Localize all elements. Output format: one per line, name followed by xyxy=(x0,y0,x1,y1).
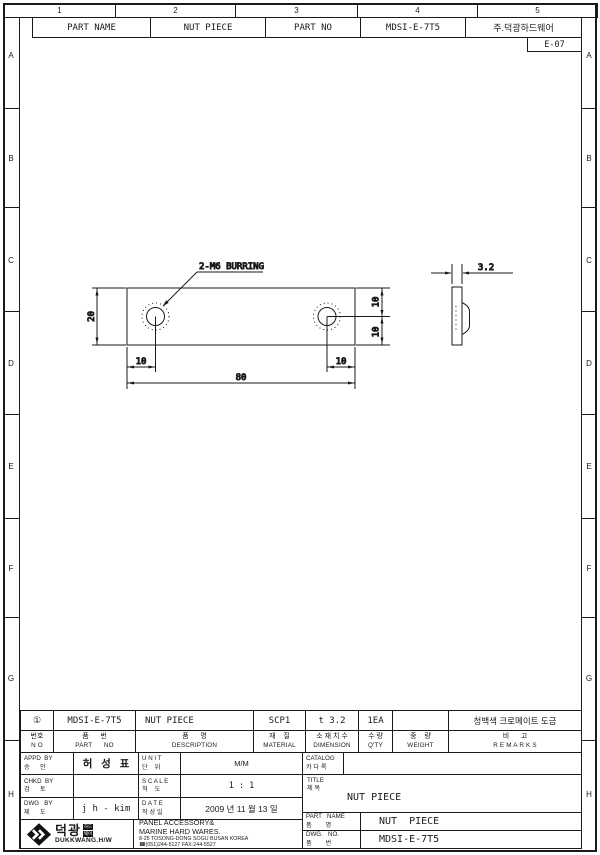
tb-header-ko: 품 번 xyxy=(82,733,107,742)
tb-header-weight: 중 량WEIGHT xyxy=(392,730,449,753)
tb-catalog-ko: 카 다 록 xyxy=(306,764,340,772)
dim-arrow xyxy=(348,382,355,385)
tb-company-cell: PANEL ACCESSORY& MARINE HARD WARES. 8-25… xyxy=(133,819,303,849)
logo-text-block: 덕광 하드 웨어 DUKKWANG.H/W xyxy=(55,824,112,845)
dim-arrow xyxy=(463,272,470,275)
tb-date-value-text: 2009 년 11 월 13 일 xyxy=(205,803,277,815)
tb-partname-ko: 품 명 xyxy=(306,822,357,830)
tb-header-no: 번호N O xyxy=(20,730,54,753)
tb-dwgno-ko: 품 번 xyxy=(306,840,357,848)
tb-qty-text: 1EA xyxy=(367,716,383,726)
tb-appd-value-text: 허 성 표 xyxy=(83,756,129,771)
tb-date-label: D A T E작 성 일 xyxy=(138,797,181,820)
tb-appd-ko: 승 인 xyxy=(24,764,70,772)
dim-arrow xyxy=(149,366,156,369)
tb-remarks: 청백색 크로메이트 도금 xyxy=(448,710,582,731)
dim-arrow xyxy=(96,338,99,345)
tb-header-en: R E M A R K S xyxy=(493,742,537,750)
tb-weight xyxy=(392,710,449,731)
tb-description: NUT PIECE xyxy=(135,710,254,731)
logo-english-name: DUKKWANG.H/W xyxy=(55,838,112,845)
tb-unit-label: U N I T단 위 xyxy=(138,752,181,775)
tb-logo-cell: 덕광 하드 웨어 DUKKWANG.H/W xyxy=(20,819,134,849)
dim-arrow xyxy=(348,366,355,369)
tb-part-no-text: MDSI-E-7T5 xyxy=(67,716,121,726)
dukkwang-logo-icon xyxy=(26,822,52,847)
tb-dimension: t 3.2 xyxy=(305,710,359,731)
tb-header-en: N O xyxy=(31,742,43,750)
logo-badge-bottom: 웨어 xyxy=(83,831,93,837)
tb-header-ko: 품 명 xyxy=(182,733,207,742)
dim-text-length: 80 xyxy=(236,373,247,383)
tb-catalog-label: CATALOG카 다 록 xyxy=(302,752,344,775)
tb-description-text: NUT PIECE xyxy=(145,716,194,726)
tb-date-en: D A T E xyxy=(142,800,177,808)
tb-scale-value-text: 1 : 1 xyxy=(229,781,255,791)
tb-no: ① xyxy=(20,710,54,731)
logo-korean-name: 덕광 xyxy=(55,824,81,837)
tb-part-no: MDSI-E-7T5 xyxy=(53,710,136,731)
tb-partname-value-text: NUT PIECE xyxy=(379,816,439,827)
tb-dwgby-value: j h - kim xyxy=(73,797,139,820)
dim-arrow xyxy=(445,272,452,275)
tb-header-material: 재 질MATERIAL xyxy=(253,730,306,753)
tb-appd-label: APPD BY승 인 xyxy=(20,752,74,775)
tb-header-en: DIMENSION xyxy=(313,742,350,750)
dim-arrow xyxy=(381,289,384,296)
tb-appd-value: 허 성 표 xyxy=(73,752,139,775)
company-line2: MARINE HARD WARES. xyxy=(139,828,302,836)
tb-material: SCP1 xyxy=(253,710,306,731)
tb-unit-value-text: M/M xyxy=(234,759,249,768)
tb-header-description: 품 명DESCRIPTION xyxy=(135,730,254,753)
tb-dwgno-value: MDSI-E-7T5 xyxy=(360,830,582,849)
tb-date-ko: 작 성 일 xyxy=(142,809,177,817)
tb-dwgby-ko: 제 도 xyxy=(24,809,70,817)
tb-header-part-no: 품 번PART NO xyxy=(53,730,136,753)
tb-header-ko: 소 재 치 수 xyxy=(316,733,348,742)
tb-header-ko: 비 고 xyxy=(503,733,528,742)
tb-dwgno-label: DWG. NO.품 번 xyxy=(302,830,361,849)
tb-unit-value: M/M xyxy=(180,752,303,775)
tb-header-ko: 중 량 xyxy=(410,733,431,742)
dim-arrow xyxy=(381,317,384,324)
dim-text-height: 20 xyxy=(87,311,97,322)
tb-partname-en: PART NAME xyxy=(306,813,357,821)
dim-text-thickness: 3.2 xyxy=(478,263,494,273)
tb-dimension-text: t 3.2 xyxy=(318,716,345,726)
tb-header-en: WEIGHT xyxy=(407,742,433,750)
side-view-outline xyxy=(452,287,462,345)
logo-badge-top: 하드 xyxy=(83,824,93,830)
tb-scale-label: S C A L E척 도 xyxy=(138,774,181,798)
tb-dwgby-label: DWG BY제 도 xyxy=(20,797,74,820)
tb-material-text: SCP1 xyxy=(269,716,291,726)
tb-partname-value: NUT PIECE xyxy=(360,812,582,831)
tb-header-remarks: 비 고R E M A R K S xyxy=(448,730,582,753)
company-line4: ☎(051)244-5127 FAX:244-5527 xyxy=(139,842,302,848)
burring-label: 2-M6 BURRING xyxy=(199,262,264,272)
tb-unit-en: U N I T xyxy=(142,755,177,763)
tb-remarks-text: 청백색 크로메이트 도금 xyxy=(474,715,557,727)
dim-arrow xyxy=(128,366,135,369)
dim-arrow xyxy=(381,338,384,345)
tb-scale-value: 1 : 1 xyxy=(180,774,303,798)
tb-no-text: ① xyxy=(33,715,41,726)
tb-chkd-value xyxy=(73,774,139,798)
side-view-burring-bump xyxy=(462,303,470,335)
tb-partname-label: PART NAME품 명 xyxy=(302,812,361,831)
logo-badges: 하드 웨어 xyxy=(83,824,93,837)
dim-arrow xyxy=(128,382,135,385)
tb-chkd-en: CHKD BY xyxy=(24,778,70,786)
drawing-sheet: 1 2 3 4 5 A B C D E F G H A B C D E F G … xyxy=(0,0,600,855)
dim-text-hole-left: 10 xyxy=(136,357,147,367)
dim-arrow xyxy=(328,366,335,369)
tb-unit-ko: 단 위 xyxy=(142,764,177,772)
tb-title-en: TITLE xyxy=(307,777,324,785)
tb-dwgno-en: DWG. NO. xyxy=(306,831,357,839)
tb-chkd-ko: 검 토 xyxy=(24,786,70,794)
tb-chkd-label: CHKD BY검 토 xyxy=(20,774,74,798)
dim-text-hole-top: 10 xyxy=(372,297,382,308)
tb-scale-ko: 척 도 xyxy=(142,786,177,794)
tb-dwgno-value-text: MDSI-E-7T5 xyxy=(379,834,439,845)
tb-scale-en: S C A L E xyxy=(142,778,177,786)
tb-title-ko: 제 목 xyxy=(307,785,324,793)
tb-header-en: MATERIAL xyxy=(263,742,296,750)
tb-date-value: 2009 년 11 월 13 일 xyxy=(180,797,303,820)
tb-title-value: NUT PIECE xyxy=(347,792,401,803)
tb-header-en: DESCRIPTION xyxy=(172,742,217,750)
tb-appd-en: APPD BY xyxy=(24,755,70,763)
tb-header-qty: 수 량Q'TY xyxy=(358,730,393,753)
tb-dwgby-en: DWG BY xyxy=(24,800,70,808)
dim-arrow xyxy=(96,289,99,296)
tb-header-dimension: 소 재 치 수DIMENSION xyxy=(305,730,359,753)
tb-header-ko: 재 질 xyxy=(269,733,290,742)
tb-title-cell: TITLE제 목 NUT PIECE xyxy=(302,774,582,813)
tb-header-ko: 번호 xyxy=(31,733,44,742)
tb-header-en: PART NO xyxy=(75,742,113,750)
dim-text-hole-bottom: 10 xyxy=(372,327,382,338)
tb-header-en: Q'TY xyxy=(368,742,383,750)
tb-title-label: TITLE제 목 xyxy=(307,777,324,793)
tb-qty: 1EA xyxy=(358,710,393,731)
tb-dwgby-value-text: j h - kim xyxy=(82,804,131,814)
tb-catalog-value xyxy=(343,752,582,775)
dim-text-hole-right: 10 xyxy=(336,357,347,367)
tb-catalog-en: CATALOG xyxy=(306,755,340,763)
tb-header-ko: 수 량 xyxy=(368,733,383,742)
dim-arrow xyxy=(381,310,384,316)
plate-outline xyxy=(127,288,355,345)
